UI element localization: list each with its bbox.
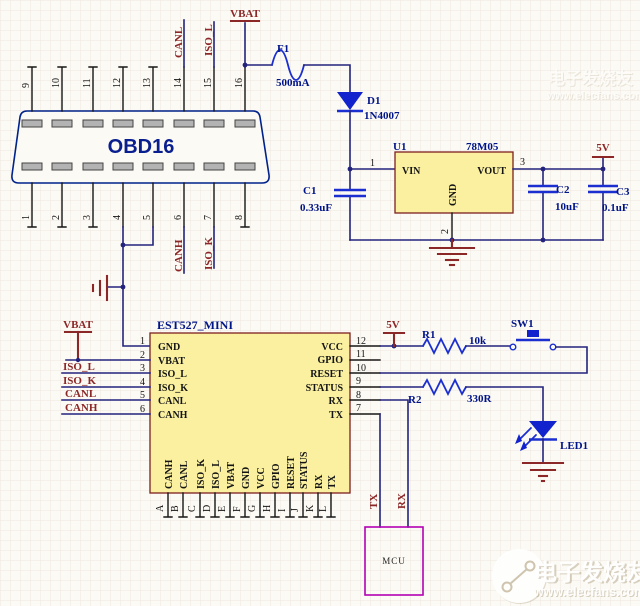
pin-name: RESET [286, 456, 297, 489]
pin-designator: L [318, 506, 329, 512]
v5-label: 5V [386, 319, 400, 331]
pin-number: 1 [140, 336, 145, 347]
pin-number: 6 [173, 215, 184, 220]
pin-number: 6 [140, 404, 145, 415]
pin-designator: C [187, 505, 198, 512]
pad [174, 163, 194, 170]
pin-number: 9 [356, 376, 361, 387]
pin-designator: J [290, 508, 301, 512]
regulator-ref: U1 [393, 141, 406, 153]
pin-designator: A [155, 504, 166, 512]
r1-ref: R1 [422, 329, 435, 341]
c3-value: 0.1uF [602, 202, 629, 214]
net-label-canh: CANH [65, 402, 98, 414]
pin-designator: H [262, 505, 273, 512]
pin-number: 4 [140, 377, 145, 388]
watermark-top-right: 电子发烧友 电子发烧友 www.elecfans.com www.elecfan… [546, 68, 640, 103]
pad [143, 163, 163, 170]
vbat-power-port-top: VBAT [230, 8, 260, 21]
schematic-page: OBD16 9 10 11 12 13 14 15 16 1 [0, 0, 640, 606]
pad [113, 163, 133, 170]
pad [204, 120, 224, 127]
pin-number: 15 [203, 78, 214, 88]
pin-name: STATUS [299, 451, 310, 489]
pin-name: GPIO [317, 355, 343, 366]
r2-ref: R2 [408, 394, 422, 406]
pad [235, 163, 255, 170]
c3-ref: C3 [616, 186, 630, 198]
pad [52, 163, 72, 170]
r2-value: 330R [467, 393, 493, 405]
pad [83, 163, 103, 170]
pin-designator: G [247, 505, 258, 512]
pad [235, 120, 255, 127]
net-label-iso-l: ISO_L [203, 24, 215, 56]
pin-number: 4 [112, 215, 123, 220]
u1-pin3-number: 3 [520, 157, 525, 168]
pin-name: VCC [256, 467, 267, 489]
pin-number: 5 [140, 390, 145, 401]
pin-name: RX [314, 474, 325, 489]
net-label-canl: CANL [65, 388, 96, 400]
vbat-power-port-module: VBAT [63, 319, 93, 332]
fuse-ref: F1 [277, 43, 289, 55]
obd16-title: OBD16 [108, 136, 175, 158]
vbat-label: VBAT [230, 8, 260, 20]
module-title: EST527_MINI [157, 318, 233, 332]
pin-designator: D [202, 505, 213, 512]
watermark-brand: 电子发烧友 [548, 68, 633, 88]
c2-value: 10uF [555, 201, 579, 213]
sw1-ref: SW1 [511, 318, 534, 330]
pin-name: VBAT [158, 356, 185, 367]
mcu-label: MCU [382, 556, 406, 566]
u1-pin2-number: 2 [440, 229, 451, 234]
pin-designator: K [305, 504, 316, 512]
net-label-iso-l: ISO_L [63, 361, 95, 373]
pin-name: STATUS [306, 383, 344, 394]
pad [22, 120, 42, 127]
pin-name: CANH [164, 459, 175, 489]
pin-name: VBAT [226, 462, 237, 489]
v5-label: 5V [596, 142, 610, 154]
pin-number: 7 [203, 215, 214, 220]
c2-ref: C2 [556, 184, 570, 196]
pin-name: CANH [158, 410, 188, 421]
pin-number: 13 [142, 78, 153, 88]
net-label-iso-k: ISO_K [63, 375, 96, 387]
pin-name: ISO_L [211, 460, 222, 489]
pin-name: RESET [310, 369, 343, 380]
u1-pin1-number: 1 [370, 158, 375, 169]
pin-name: ISO_K [158, 383, 188, 394]
pin-name: TX [329, 410, 344, 421]
pin-number: 3 [82, 215, 93, 220]
pin-designator: I [277, 509, 288, 512]
pin-number: 5 [142, 215, 153, 220]
pad [143, 120, 163, 127]
pin-number: 3 [140, 363, 145, 374]
pad [174, 120, 194, 127]
pin-number: 11 [82, 78, 93, 88]
pin-number: 7 [356, 403, 361, 414]
regulator-gnd-label: GND [448, 184, 459, 206]
pin-name: CANL [179, 460, 190, 489]
diode-value: 1N4007 [364, 110, 400, 122]
pin-designator: E [217, 506, 228, 512]
pin-number: 2 [140, 350, 145, 361]
pin-name: VCC [321, 342, 343, 353]
net-label-canl: CANL [173, 27, 185, 58]
pin-name: CANL [158, 396, 187, 407]
pin-name: TX [327, 474, 338, 489]
pad [52, 120, 72, 127]
vbat-label: VBAT [63, 319, 93, 331]
pin-number: 1 [21, 215, 32, 220]
pin-number: 9 [21, 83, 32, 88]
pin-designator: B [170, 505, 181, 512]
pad [83, 120, 103, 127]
net-label-canh: CANH [173, 239, 185, 272]
c1-value: 0.33uF [300, 202, 332, 214]
pin-designator: F [232, 506, 243, 512]
pin-number: 8 [234, 215, 245, 220]
pin-number: 14 [173, 78, 184, 88]
pin-number: 11 [356, 349, 366, 360]
regulator-vin-label: VIN [402, 166, 421, 177]
fuse-value: 500mA [276, 77, 310, 89]
net-label-iso-k: ISO_K [203, 237, 215, 270]
net-label-rx: RX [396, 493, 408, 509]
pad [22, 163, 42, 170]
pin-name: RX [329, 396, 344, 407]
pin-name: GND [241, 467, 252, 489]
pin-name: GND [158, 342, 180, 353]
net-label-tx: TX [368, 494, 380, 509]
pad [113, 120, 133, 127]
pad [204, 163, 224, 170]
pin-name: ISO_K [196, 459, 207, 489]
diode-ref: D1 [367, 95, 380, 107]
c1-ref: C1 [303, 185, 316, 197]
watermark-brand: 电子发烧友 [534, 559, 640, 585]
pin-name: ISO_L [158, 369, 187, 380]
regulator-vout-label: VOUT [477, 166, 506, 177]
grid-overlay [0, 0, 640, 606]
regulator-value: 78M05 [466, 141, 499, 153]
watermark-url: www.elecfans.com [533, 585, 640, 599]
pin-name: GPIO [271, 463, 282, 489]
pin-number: 2 [51, 215, 62, 220]
pin-number: 10 [51, 78, 62, 88]
pin-number: 12 [112, 78, 123, 88]
led1-ref: LED1 [560, 440, 588, 452]
schematic-canvas: OBD16 9 10 11 12 13 14 15 16 1 [0, 0, 640, 606]
watermark-url: www.elecfans.com [546, 90, 640, 102]
pin-number: 16 [234, 78, 245, 88]
